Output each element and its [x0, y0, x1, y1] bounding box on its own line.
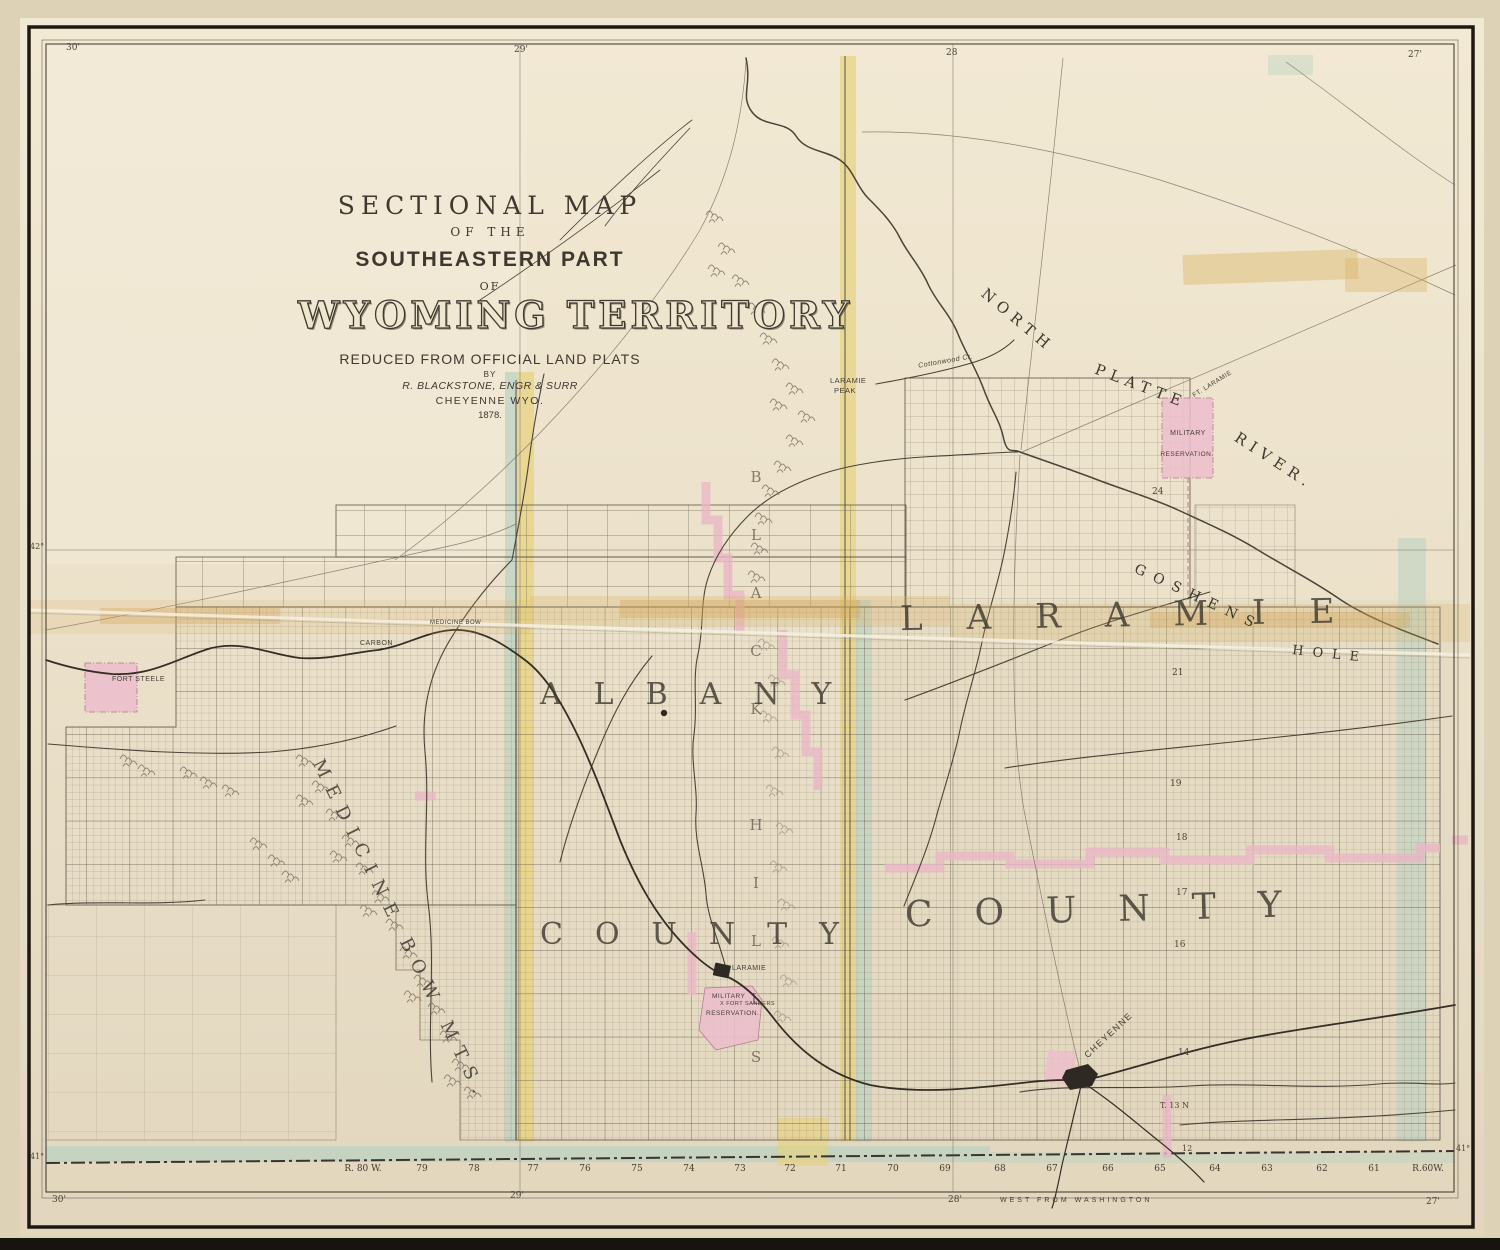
- title-cheyenne: CHEYENNE WYO.: [330, 396, 650, 407]
- lat-42-left: 42°: [30, 543, 44, 551]
- ft-laramie-reservation-label-1: MILITARY: [1160, 430, 1216, 437]
- township-12: 12: [1182, 1144, 1192, 1153]
- range-label: 63: [1261, 1164, 1272, 1174]
- fort-steele-label: FORT STEELE: [112, 676, 165, 683]
- laramie-county-name: LARAMIE: [900, 594, 1379, 636]
- albany-county-name: ALBANY: [540, 680, 863, 710]
- township-19: 19: [1170, 779, 1181, 789]
- range-label: 70: [887, 1164, 898, 1174]
- bottom-tick-29: 29': [510, 1192, 524, 1201]
- ft-sanders-reservation-label-3: RESERVATION.: [706, 1011, 759, 1018]
- range-label: 68: [994, 1164, 1005, 1174]
- black-hills-label: BLACK HILLS: [748, 468, 763, 1048]
- range-label: 67: [1046, 1164, 1057, 1174]
- top-tick-27: 27': [1408, 51, 1422, 60]
- top-tick-29: 29': [514, 46, 528, 55]
- title-reduced-from: REDUCED FROM OFFICIAL LAND PLATS: [330, 352, 650, 366]
- range-label: R. 80 W.: [344, 1164, 381, 1174]
- title-southeastern-part: SOUTHEASTERN PART: [330, 249, 650, 270]
- township-13n: T. 13 N: [1160, 1101, 1189, 1110]
- range-label: 64: [1209, 1164, 1220, 1174]
- range-label: 74: [683, 1164, 694, 1174]
- west-from-washington-label: WEST FROM WASHINGTON: [1000, 1197, 1152, 1204]
- lat-41-left: 41°: [30, 1153, 44, 1161]
- lat-41-right: 41°: [1456, 1145, 1470, 1153]
- township-17: 17: [1176, 888, 1187, 898]
- ft-sanders-reservation-label-2: X FORT SANDERS: [720, 1002, 775, 1008]
- township-21: 21: [1172, 668, 1183, 678]
- range-label: 65: [1154, 1164, 1165, 1174]
- title-author: R. BLACKSTONE, ENGR & SURR: [330, 381, 650, 392]
- map-sheet: { "title_block": { "line1": "SECTIONAL M…: [0, 0, 1500, 1250]
- range-label: 78: [468, 1164, 479, 1174]
- range-label: R.60W.: [1412, 1164, 1444, 1174]
- range-label: 75: [631, 1164, 642, 1174]
- laramie-peak-label-1: LARAMIE: [830, 377, 866, 385]
- ft-laramie-reservation-label-2: RESERVATION.: [1154, 452, 1220, 459]
- bottom-tick-28: 28': [948, 1196, 962, 1205]
- top-tick-28: 28: [946, 49, 957, 58]
- range-label: 79: [416, 1164, 427, 1174]
- title-date: 1878.: [330, 411, 650, 421]
- top-tick-30: 30': [66, 44, 80, 53]
- township-16: 16: [1174, 940, 1185, 950]
- range-label: 72: [784, 1164, 795, 1174]
- carbon-label: CARBON: [360, 640, 393, 647]
- medicine-bow-station-label: MEDICINE BOW: [430, 620, 481, 626]
- title-by: BY: [330, 371, 650, 379]
- township-14: 14: [1178, 1048, 1189, 1058]
- title-of: OF: [330, 281, 650, 292]
- map-title: SECTIONAL MAP: [330, 193, 650, 218]
- range-label: 62: [1316, 1164, 1327, 1174]
- range-label: 77: [527, 1164, 538, 1174]
- title-wyoming-territory: WYOMING TERRITORY: [298, 297, 732, 334]
- ft-sanders-reservation-label-1: MILITARY: [712, 994, 745, 1001]
- range-label: 73: [734, 1164, 745, 1174]
- title-of-the: OF THE: [330, 226, 650, 238]
- albany-county-word: COUNTY: [540, 920, 871, 950]
- range-label: 71: [835, 1164, 846, 1174]
- range-label: 66: [1102, 1164, 1113, 1174]
- bottom-tick-27: 27': [1426, 1198, 1440, 1207]
- laramie-peak-label-2: PEAK: [834, 387, 856, 395]
- range-label: 76: [579, 1164, 590, 1174]
- laramie-city-label: LARAMIE: [732, 965, 766, 972]
- photo-background-strip: [0, 1238, 1500, 1250]
- township-24: 24: [1152, 487, 1163, 497]
- township-18: 18: [1176, 833, 1187, 843]
- bottom-tick-30: 30': [52, 1196, 66, 1205]
- range-label: 69: [939, 1164, 950, 1174]
- range-label: 61: [1368, 1164, 1379, 1174]
